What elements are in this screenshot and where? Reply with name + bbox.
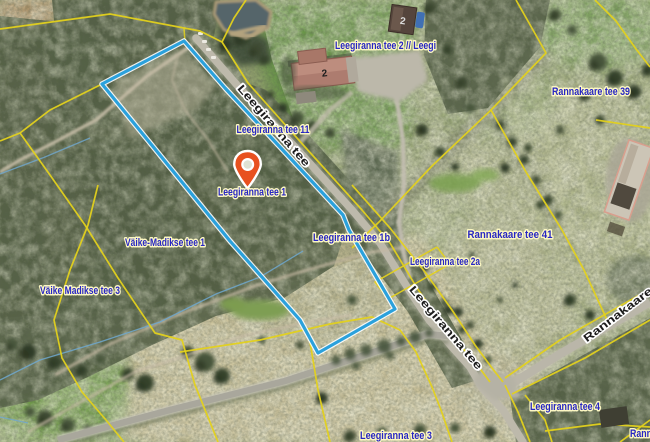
svg-text:Leegiranna tee 11: Leegiranna tee 11 xyxy=(237,124,310,136)
svg-text:Väike Madikse tee 3: Väike Madikse tee 3 xyxy=(40,285,120,297)
svg-text:Leegiranna tee 1b: Leegiranna tee 1b xyxy=(313,232,390,244)
svg-text:Leegiranna tee 2 // Leegi: Leegiranna tee 2 // Leegi xyxy=(335,40,436,52)
svg-text:Leegiranna tee 3: Leegiranna tee 3 xyxy=(360,430,432,442)
svg-text:Rann: Rann xyxy=(630,428,650,440)
svg-text:Väike-Madikse tee 1: Väike-Madikse tee 1 xyxy=(125,237,205,249)
svg-text:Leegiranna tee 4: Leegiranna tee 4 xyxy=(530,401,601,413)
svg-text:Rannakaare tee 41: Rannakaare tee 41 xyxy=(468,229,553,241)
svg-text:Rannakaare tee 39: Rannakaare tee 39 xyxy=(552,86,630,98)
svg-text:Leegiranna tee 2a: Leegiranna tee 2a xyxy=(410,256,481,268)
svg-text:Leegiranna tee 1: Leegiranna tee 1 xyxy=(218,187,286,199)
